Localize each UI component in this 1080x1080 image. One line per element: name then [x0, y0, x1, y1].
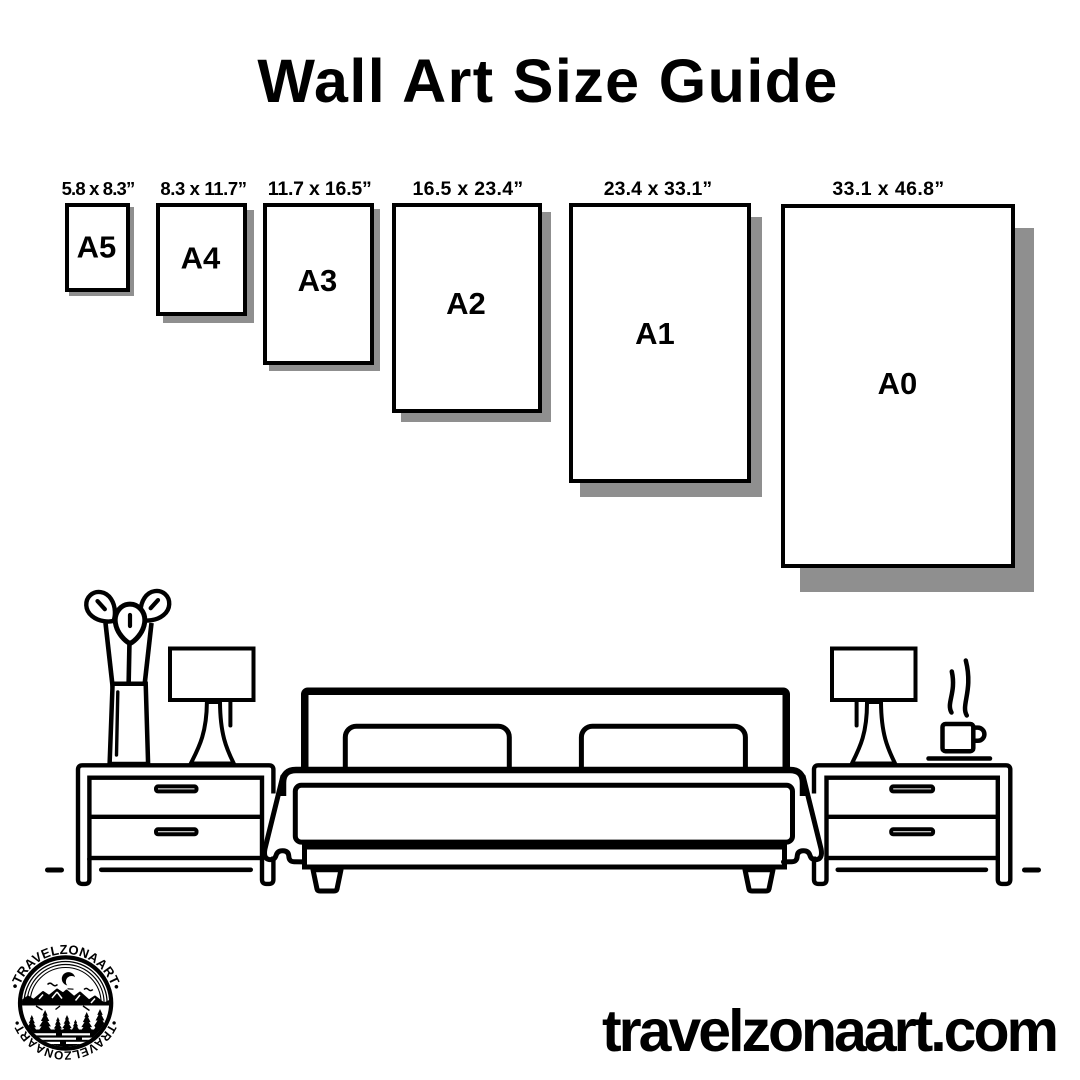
svg-text:16.5 x 23.4”: 16.5 x 23.4”	[413, 178, 524, 200]
svg-text:A4: A4	[181, 241, 221, 276]
svg-text:33.1 x 46.8”: 33.1 x 46.8”	[832, 178, 944, 200]
svg-text:5.8 x 8.3”: 5.8 x 8.3”	[62, 178, 135, 199]
svg-text:A3: A3	[298, 263, 338, 298]
svg-text:A2: A2	[446, 286, 486, 321]
svg-text:A5: A5	[77, 230, 117, 265]
svg-text:23.4 x 33.1”: 23.4 x 33.1”	[604, 178, 713, 200]
svg-text:travelzonaart.com: travelzonaart.com	[602, 998, 1056, 1064]
svg-text:8.3 x 11.7”: 8.3 x 11.7”	[160, 178, 246, 199]
svg-text:A1: A1	[635, 316, 675, 351]
svg-text:Wall Art Size Guide: Wall Art Size Guide	[257, 47, 838, 115]
svg-text:11.7 x 16.5”: 11.7 x 16.5”	[268, 178, 372, 200]
svg-text:A0: A0	[878, 366, 918, 401]
